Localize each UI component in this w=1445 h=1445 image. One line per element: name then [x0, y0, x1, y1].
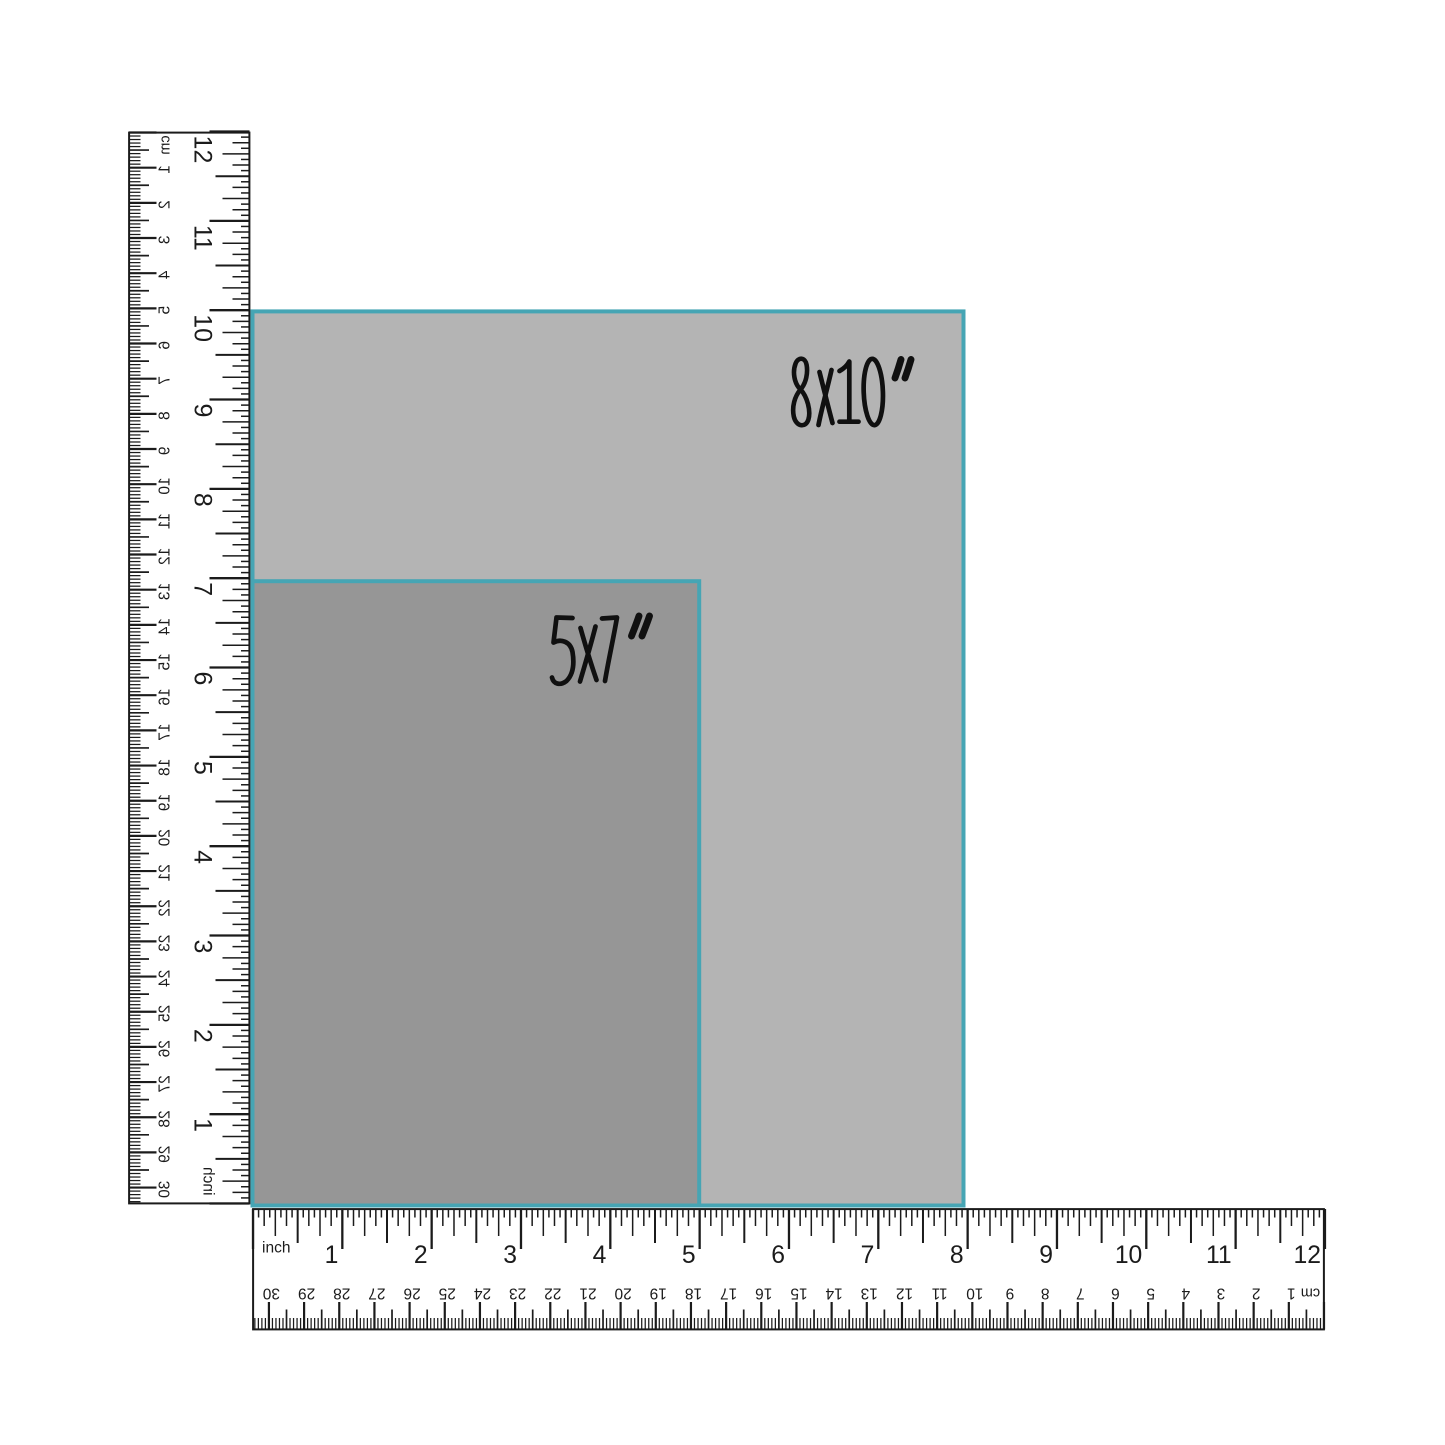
svg-text:21: 21	[579, 1285, 596, 1302]
svg-text:26: 26	[157, 1040, 174, 1057]
svg-text:3: 3	[503, 1242, 517, 1269]
svg-text:28: 28	[333, 1285, 350, 1302]
svg-text:6: 6	[189, 672, 217, 686]
svg-text:3: 3	[157, 235, 174, 244]
svg-text:17: 17	[157, 724, 174, 741]
svg-text:cm: cm	[158, 135, 174, 154]
svg-text:18: 18	[157, 759, 174, 776]
svg-text:4: 4	[157, 271, 174, 280]
svg-text:15: 15	[790, 1285, 807, 1302]
svg-text:inch: inch	[262, 1240, 290, 1257]
svg-text:2: 2	[157, 200, 174, 209]
svg-text:8: 8	[1041, 1285, 1050, 1302]
svg-text:8: 8	[157, 411, 174, 420]
svg-text:28: 28	[157, 1110, 174, 1127]
svg-text:9: 9	[189, 404, 217, 418]
svg-text:9: 9	[1006, 1285, 1015, 1302]
svg-text:7: 7	[1076, 1285, 1085, 1302]
svg-text:30: 30	[262, 1285, 280, 1302]
svg-text:30: 30	[157, 1181, 174, 1199]
svg-text:6: 6	[771, 1242, 785, 1269]
svg-text:12: 12	[896, 1285, 913, 1302]
svg-text:1: 1	[157, 165, 174, 174]
svg-text:4: 4	[189, 850, 217, 864]
svg-text:2: 2	[189, 1029, 217, 1043]
svg-text:2: 2	[414, 1242, 428, 1269]
svg-text:12: 12	[189, 136, 217, 164]
svg-text:21: 21	[157, 864, 174, 881]
svg-text:22: 22	[157, 899, 174, 916]
svg-text:cm: cm	[1301, 1285, 1320, 1301]
svg-text:9: 9	[1039, 1242, 1053, 1269]
svg-text:3: 3	[189, 940, 217, 954]
svg-text:5: 5	[1146, 1285, 1155, 1302]
svg-text:12: 12	[1293, 1242, 1320, 1269]
svg-text:26: 26	[403, 1285, 420, 1302]
svg-text:4: 4	[593, 1242, 607, 1269]
svg-text:14: 14	[157, 618, 174, 636]
svg-text:7: 7	[861, 1242, 875, 1269]
svg-text:7: 7	[157, 376, 174, 385]
svg-text:11: 11	[932, 1285, 948, 1302]
svg-text:19: 19	[650, 1285, 667, 1302]
svg-text:6: 6	[157, 341, 174, 350]
svg-text:25: 25	[439, 1285, 456, 1302]
svg-text:5: 5	[157, 306, 174, 315]
svg-text:22: 22	[544, 1285, 561, 1302]
svg-text:23: 23	[509, 1285, 526, 1302]
svg-text:29: 29	[157, 1146, 174, 1163]
svg-text:27: 27	[368, 1285, 385, 1302]
svg-text:20: 20	[157, 829, 174, 847]
svg-text:3: 3	[1217, 1285, 1226, 1302]
svg-text:13: 13	[861, 1285, 878, 1302]
svg-text:23: 23	[157, 935, 174, 952]
svg-text:20: 20	[614, 1285, 632, 1302]
svg-text:1: 1	[189, 1118, 217, 1132]
svg-text:7: 7	[189, 582, 217, 596]
svg-text:15: 15	[157, 653, 174, 670]
svg-text:29: 29	[298, 1285, 315, 1302]
svg-text:5: 5	[682, 1242, 696, 1269]
svg-text:10: 10	[966, 1285, 984, 1302]
svg-text:11: 11	[189, 225, 217, 251]
svg-text:12: 12	[157, 548, 174, 565]
svg-text:16: 16	[157, 688, 174, 705]
svg-text:4: 4	[1181, 1285, 1190, 1302]
svg-text:inch: inch	[200, 1167, 217, 1195]
svg-text:10: 10	[189, 314, 217, 342]
svg-text:11: 11	[157, 513, 174, 529]
svg-text:13: 13	[157, 583, 174, 600]
svg-text:8: 8	[950, 1242, 964, 1269]
svg-text:27: 27	[157, 1075, 174, 1092]
svg-text:6: 6	[1111, 1285, 1120, 1302]
svg-text:11: 11	[1206, 1242, 1232, 1269]
svg-text:8: 8	[189, 493, 217, 507]
svg-text:1: 1	[325, 1242, 339, 1269]
svg-text:9: 9	[157, 447, 174, 456]
svg-text:24: 24	[157, 970, 174, 988]
svg-text:25: 25	[157, 1005, 174, 1022]
svg-text:10: 10	[157, 477, 174, 495]
svg-text:14: 14	[825, 1285, 843, 1302]
svg-text:17: 17	[720, 1285, 737, 1302]
svg-text:1: 1	[1287, 1285, 1296, 1302]
svg-text:2: 2	[1252, 1285, 1261, 1302]
svg-text:18: 18	[685, 1285, 702, 1302]
svg-text:19: 19	[157, 794, 174, 811]
svg-text:24: 24	[473, 1285, 491, 1302]
svg-text:16: 16	[755, 1285, 772, 1302]
svg-text:10: 10	[1115, 1242, 1142, 1269]
svg-text:5: 5	[189, 761, 217, 775]
